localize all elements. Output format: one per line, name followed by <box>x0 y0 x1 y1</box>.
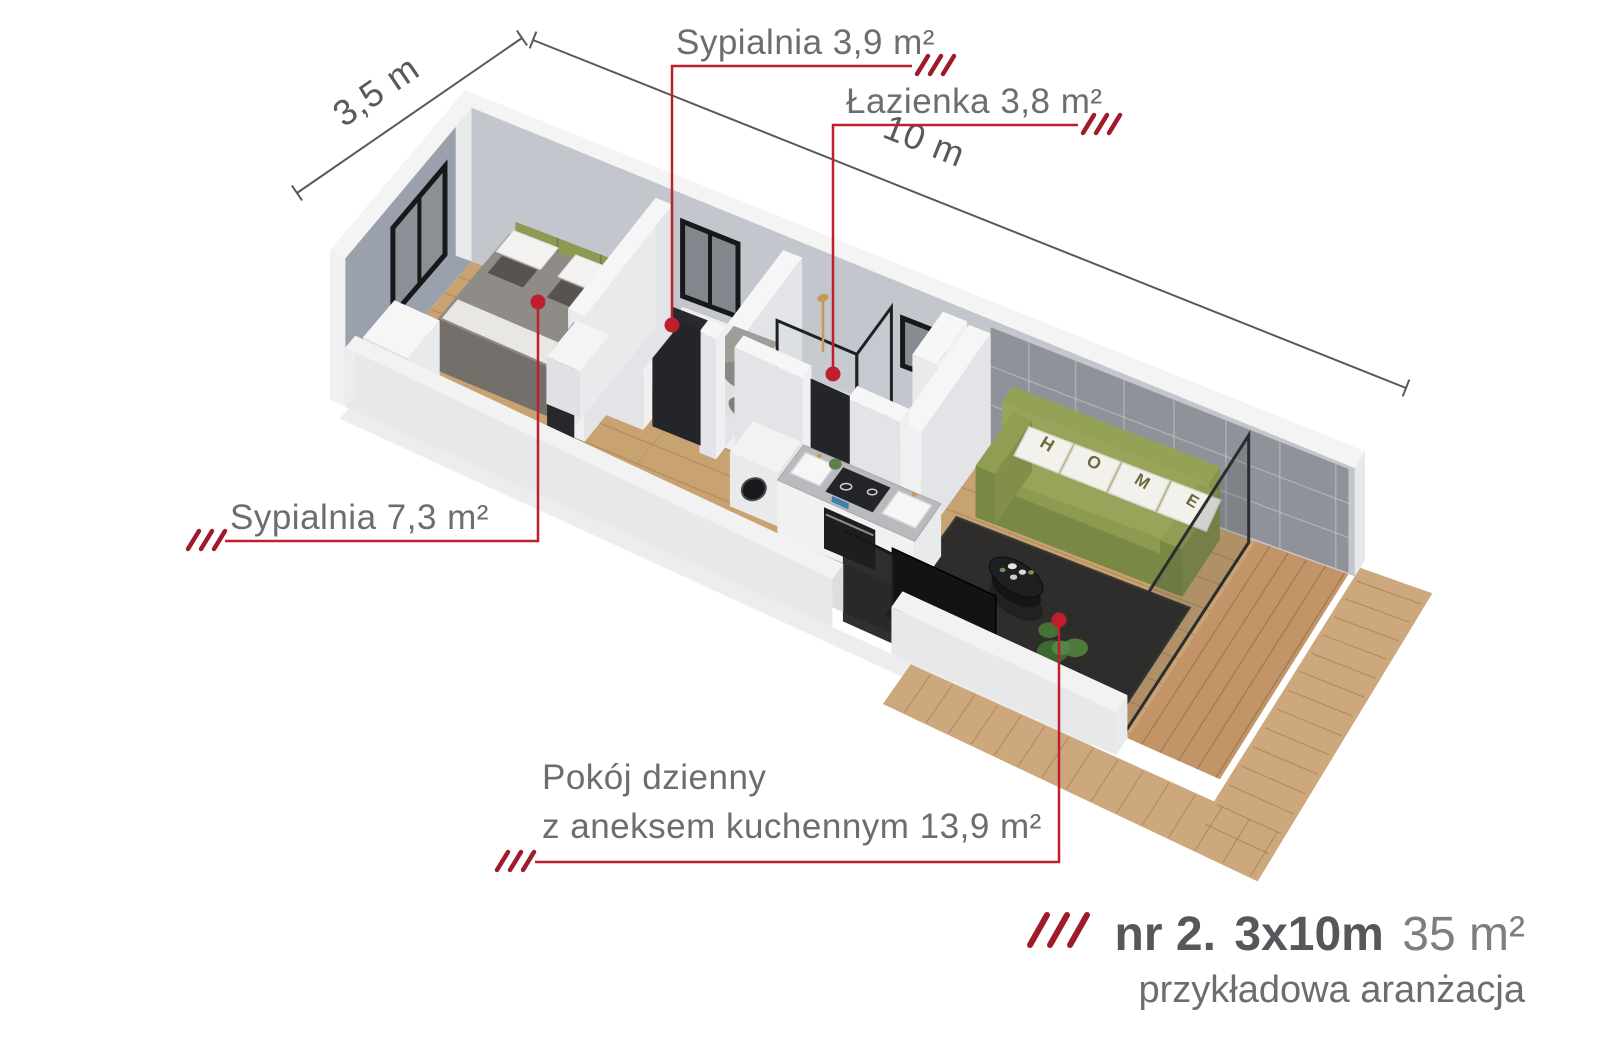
hash-footer <box>1030 915 1087 945</box>
back-wall-side <box>1355 451 1365 576</box>
faucet <box>817 454 822 458</box>
left-wall-side <box>330 250 345 407</box>
flowers <box>1008 563 1017 569</box>
flowers <box>1019 570 1026 575</box>
left-wall-side <box>456 101 472 261</box>
apartment-3d-scene: HOME <box>330 90 1432 881</box>
hash-living <box>497 852 534 870</box>
partition-side <box>699 332 716 460</box>
footer-unit-number: nr 2. <box>1115 908 1216 961</box>
label-living-line2: z aneksem kuchennym 13,9 m² <box>542 807 1042 846</box>
faucet <box>911 492 916 497</box>
footer-caption: nr 2. 3x10m 35 m² przykładowa aranżacja <box>1115 908 1526 1011</box>
label-living-line1: Pokój dzienny <box>542 758 766 797</box>
sofa-arm-side <box>976 466 995 525</box>
dot-living <box>1052 613 1067 628</box>
dim-tick <box>292 186 302 201</box>
footer-area: 35 m² <box>1402 908 1525 961</box>
flowers <box>1010 575 1017 580</box>
partition-side <box>716 327 725 459</box>
plant <box>1052 641 1071 655</box>
floorplan-visualization: HOME 3,5 m 10 m <box>0 0 1600 1048</box>
dot-bedroom-main <box>531 295 546 310</box>
label-bathroom: Łazienka 3,8 m² <box>846 82 1103 121</box>
label-bedroom-main: Sypialnia 7,3 m² <box>230 498 489 537</box>
hash-bedroom-main <box>188 531 225 549</box>
dim-tick <box>517 31 527 46</box>
dot-bedroom-small <box>665 318 680 333</box>
flowers <box>1000 568 1006 572</box>
flowers <box>1028 570 1034 574</box>
dot-bathroom <box>826 367 841 382</box>
label-bedroom-small: Sypialnia 3,9 m² <box>676 23 935 62</box>
footer-line1: nr 2. 3x10m 35 m² <box>1115 908 1525 961</box>
footer-size: 3x10m <box>1234 908 1383 961</box>
footer-subtitle: przykładowa aranżacja <box>1138 969 1525 1011</box>
dimension-width-label: 3,5 m <box>325 47 427 135</box>
counter-plant <box>829 459 842 470</box>
